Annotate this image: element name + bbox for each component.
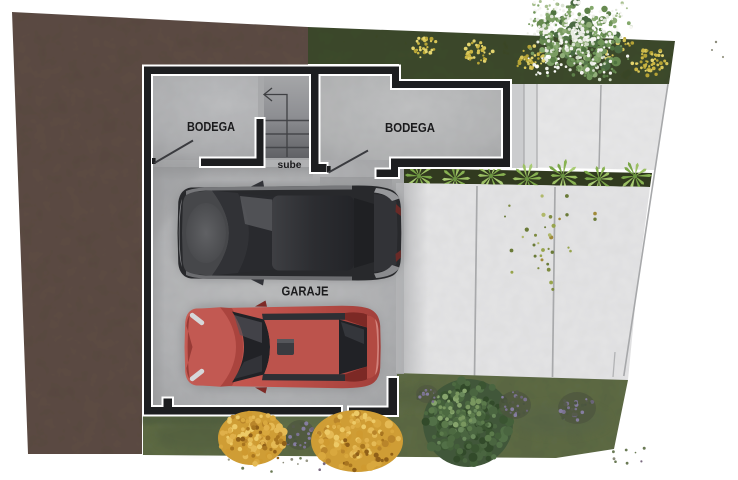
svg-text:BODEGA: BODEGA (187, 120, 235, 134)
svg-text:sube: sube (278, 160, 302, 171)
svg-text:BODEGA: BODEGA (385, 121, 435, 135)
svg-text:GARAJE: GARAJE (282, 285, 329, 299)
